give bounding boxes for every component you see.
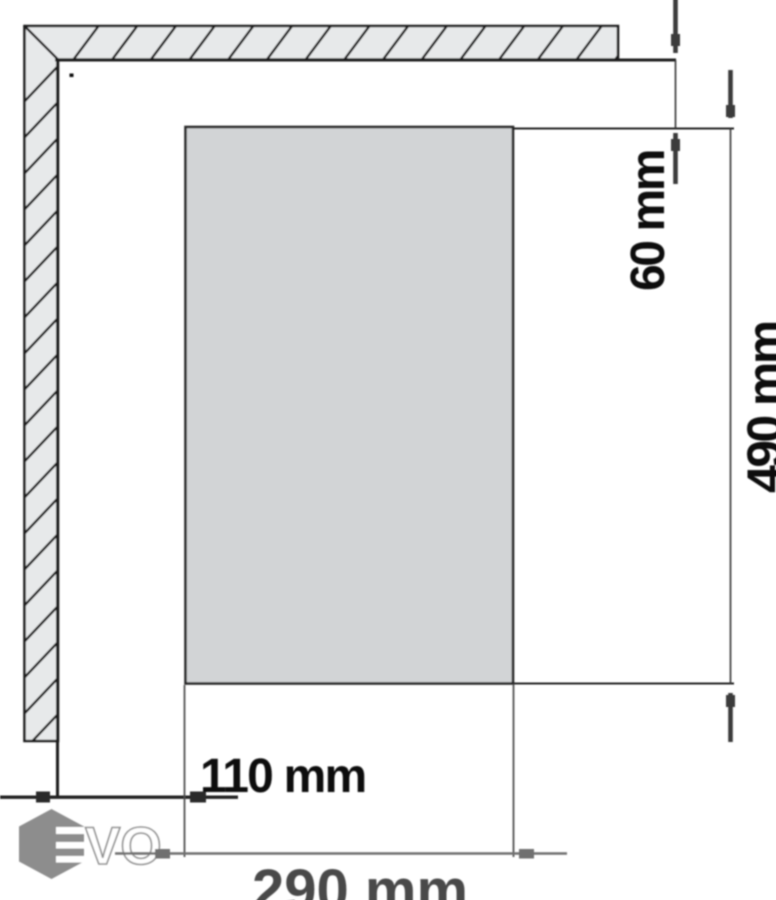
svg-text:290 mm: 290 mm	[252, 858, 468, 900]
svg-text:60 mm: 60 mm	[622, 151, 675, 291]
svg-text:VO: VO	[85, 817, 162, 876]
svg-text:490 mm: 490 mm	[737, 322, 776, 493]
svg-text:110 mm: 110 mm	[200, 750, 365, 803]
